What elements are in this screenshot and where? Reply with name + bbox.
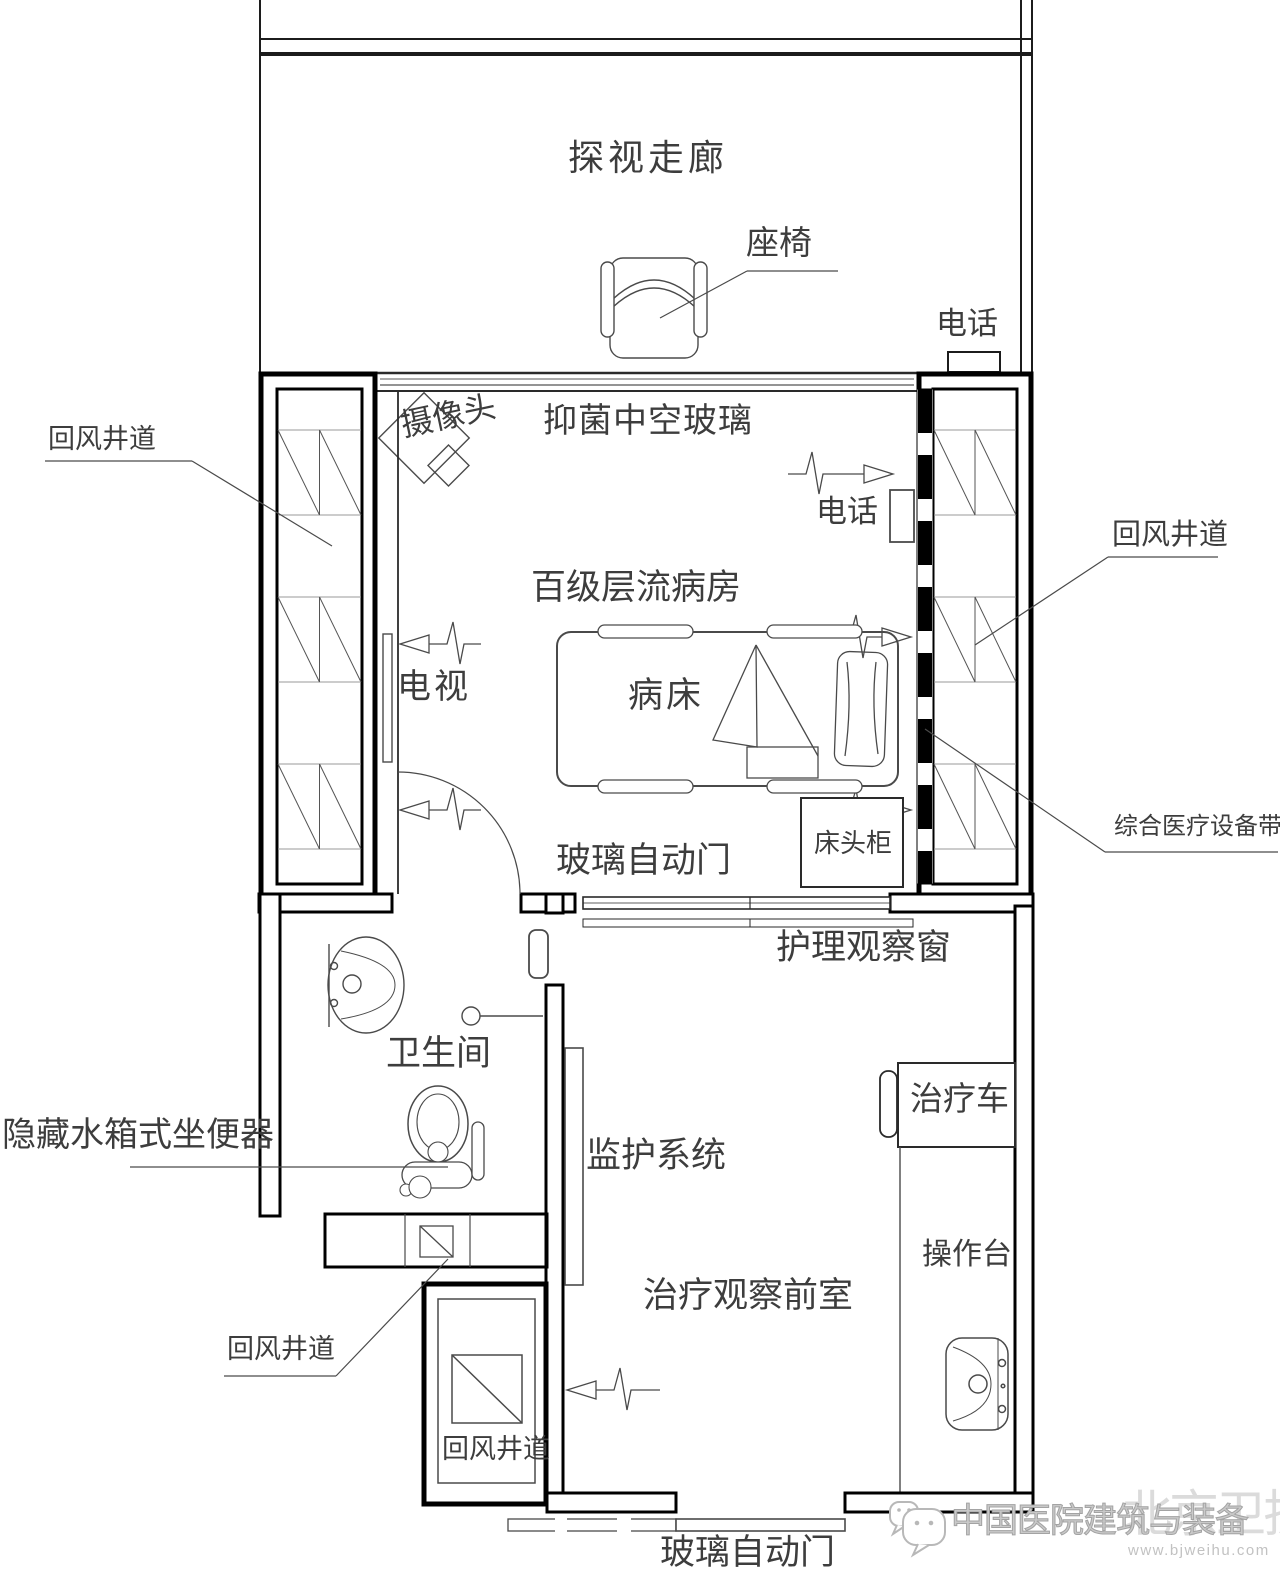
phone-top-symbol [948,352,1000,372]
worktop-counter [900,1147,1008,1492]
door-swing-arc [398,772,520,894]
blanket-fold [713,645,818,778]
hospital-bed [557,625,898,793]
bottom-sliding-door [508,1517,845,1533]
equipment-belt-label: 综合医疗设备带 [1114,815,1280,839]
watermark-url: www.bjweihu.com [1128,1543,1270,1558]
return-air-right-label: 回风井道 [1112,521,1228,550]
toilet-symbol [400,1086,484,1198]
phone-top-label: 电话 [936,308,998,339]
wechat-icon [890,1502,945,1555]
left-return-air-shaft [261,374,375,903]
anteroom-label: 治疗观察前室 [643,1278,853,1313]
anteroom-east-wall [1015,906,1033,1512]
glass-label: 抑菌中空玻璃 [543,404,753,438]
right-shaft-leader [975,557,1218,645]
bathroom-sink [328,937,404,1033]
worktop-label: 操作台 [922,1240,1012,1270]
corridor-walls [259,0,1032,374]
monitor-system-label: 监护系统 [586,1138,726,1173]
seat-label: 座椅 [746,226,812,259]
treatment-cart-label: 治疗车 [910,1082,1009,1115]
monitor-console [565,1048,583,1285]
glass-wall [377,373,917,391]
ward-label: 百级层流病房 [531,570,741,605]
cabinet-label: 床头柜 [814,830,892,856]
return-air-bottom-shaft-label: 回风井道 [442,1436,550,1463]
right-return-air-shaft [919,374,1031,903]
chair [601,258,707,358]
watermark-brand: 中国医院建筑与装备 [951,1504,1248,1538]
anteroom-arrow [567,1368,660,1410]
floor-plan: 探视走廊 座椅 电话 摄像头 抑菌中空玻璃 回风井道 回风井道 百级层流病房 电… [0,0,1280,1579]
ward-phone-symbol [890,490,914,542]
seat-leader [660,271,838,318]
tv-arrow [400,622,481,664]
observation-window [583,897,913,927]
bottom-shaft [424,1284,546,1504]
corridor-label: 探视走廊 [568,140,728,176]
floor-plan-linework [0,0,1280,1579]
toilet-label: 隐藏水箱式坐便器 [2,1118,274,1152]
tv-symbol [383,634,392,762]
return-air-bottom-left-label: 回风井道 [227,1336,335,1363]
left-shaft-leader [45,461,332,546]
tv-label: 电视 [397,670,471,704]
bathroom-door-leaf [529,930,548,978]
bottom-door-label: 玻璃自动门 [660,1535,835,1570]
ward-phone-arrow [788,452,893,494]
ward-phone-label: 电话 [816,496,878,527]
return-air-left-label: 回风井道 [48,426,156,453]
ward-door-label: 玻璃自动门 [556,843,731,878]
air-chase [325,1214,547,1267]
counter-sink [946,1338,1008,1430]
bed-label: 病床 [628,678,704,713]
door-stop [462,1007,543,1025]
bathroom-label: 卫生间 [386,1036,491,1071]
pillow [834,651,888,767]
medical-equipment-belt [917,389,933,884]
observation-window-label: 护理观察窗 [776,930,951,965]
